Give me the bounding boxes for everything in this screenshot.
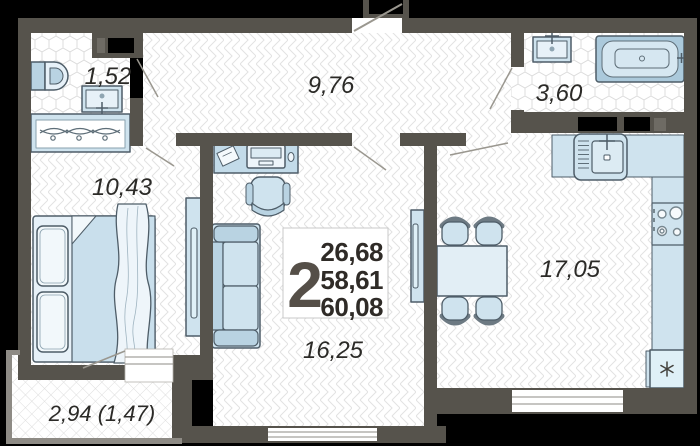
living-room-window (268, 428, 377, 441)
wc-washbasin-icon (82, 86, 122, 114)
area-apartment: 58,61 (320, 265, 383, 295)
bedroom-area-label: 10,43 (92, 174, 153, 201)
unit-badge: 2 26,68 58,61 60,08 (283, 228, 388, 322)
kitchen-area-label: 17,05 (540, 256, 601, 283)
area-total: 60,08 (320, 292, 383, 322)
toilet-icon (31, 62, 68, 90)
tv-dresser-icon (186, 198, 202, 336)
wc-area-label: 1,52 (85, 63, 132, 90)
fridge-icon (646, 350, 684, 388)
office-chair-icon (246, 177, 290, 216)
area-living: 26,68 (320, 237, 383, 267)
bathroom-area-label: 3,60 (536, 80, 583, 107)
desk-icon (214, 142, 298, 173)
stove-icon (652, 203, 684, 245)
floor-plan-canvas: 1,52 9,76 3,60 10,43 16,25 17,05 2,94 (1… (0, 0, 700, 446)
floor-plan: 1,52 9,76 3,60 10,43 16,25 17,05 2,94 (1… (0, 0, 700, 446)
rooms-count: 2 (287, 249, 323, 321)
sofa-icon (212, 224, 260, 348)
bed-icon (33, 204, 155, 363)
bathtub-icon (596, 36, 686, 82)
kitchen-sink-icon (574, 134, 627, 180)
hallway-area-label: 9,76 (308, 72, 355, 99)
wardrobe-icon (31, 114, 130, 152)
living-room-area-label: 16,25 (303, 337, 364, 364)
kitchen-window (512, 390, 623, 412)
tv-unit-icon (411, 210, 424, 302)
balcony-area-label: 2,94 (1,47) (48, 401, 155, 426)
